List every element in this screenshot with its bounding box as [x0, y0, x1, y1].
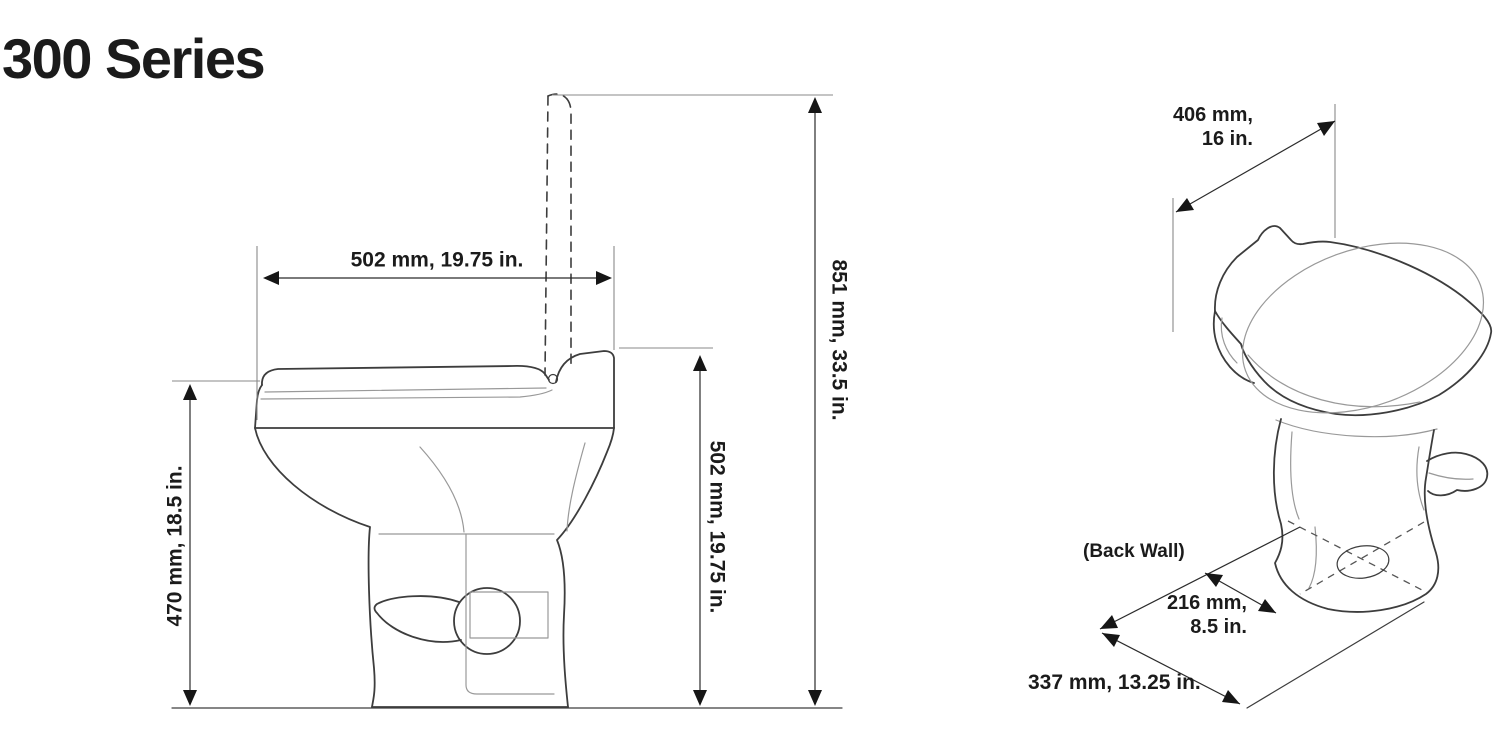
dim-label-width-line2: 16 in. — [1173, 128, 1253, 152]
dim-label-seat-depth: 502 mm, 19.75 in. — [351, 249, 524, 274]
perspective-view-drawing — [1214, 212, 1500, 708]
technical-drawing — [0, 0, 1500, 750]
dim-label-bowl-height: 470 mm, 18.5 in. — [164, 465, 189, 626]
open-lid-dashed — [545, 94, 571, 375]
side-view-dimensions — [172, 95, 833, 706]
drain-flange — [1335, 543, 1391, 582]
dim-label-seat-back-height: 502 mm, 19.75 in. — [704, 441, 729, 614]
flush-pedal-knob — [454, 588, 520, 654]
dim-label-base-depth: 337 mm, 13.25 in. — [1028, 671, 1201, 696]
flush-pedal-blade — [375, 596, 462, 642]
back-wall-label: (Back Wall) — [1083, 541, 1185, 563]
side-view-drawing — [172, 94, 842, 708]
dim-label-overall-height: 851 mm, 33.5 in. — [826, 259, 851, 420]
page-title: 300 Series — [2, 26, 264, 92]
lid-inset-line — [1219, 212, 1500, 444]
flush-pedal-perspective — [1427, 453, 1487, 496]
dim-label-drain-offset-line1: 216 mm, — [1167, 592, 1247, 616]
dim-overall-height — [808, 97, 822, 706]
pedal-mount-panel — [470, 592, 548, 638]
spec-sheet: 300 Series 502 mm, 19.75 in. 470 mm, 18.… — [0, 0, 1500, 750]
dim-label-drain-offset: 216 mm, 8.5 in. — [1167, 592, 1247, 639]
dim-label-width-line1: 406 mm, — [1173, 104, 1253, 128]
dim-label-width: 406 mm, 16 in. — [1173, 104, 1253, 151]
dim-label-drain-offset-line2: 8.5 in. — [1167, 616, 1247, 640]
